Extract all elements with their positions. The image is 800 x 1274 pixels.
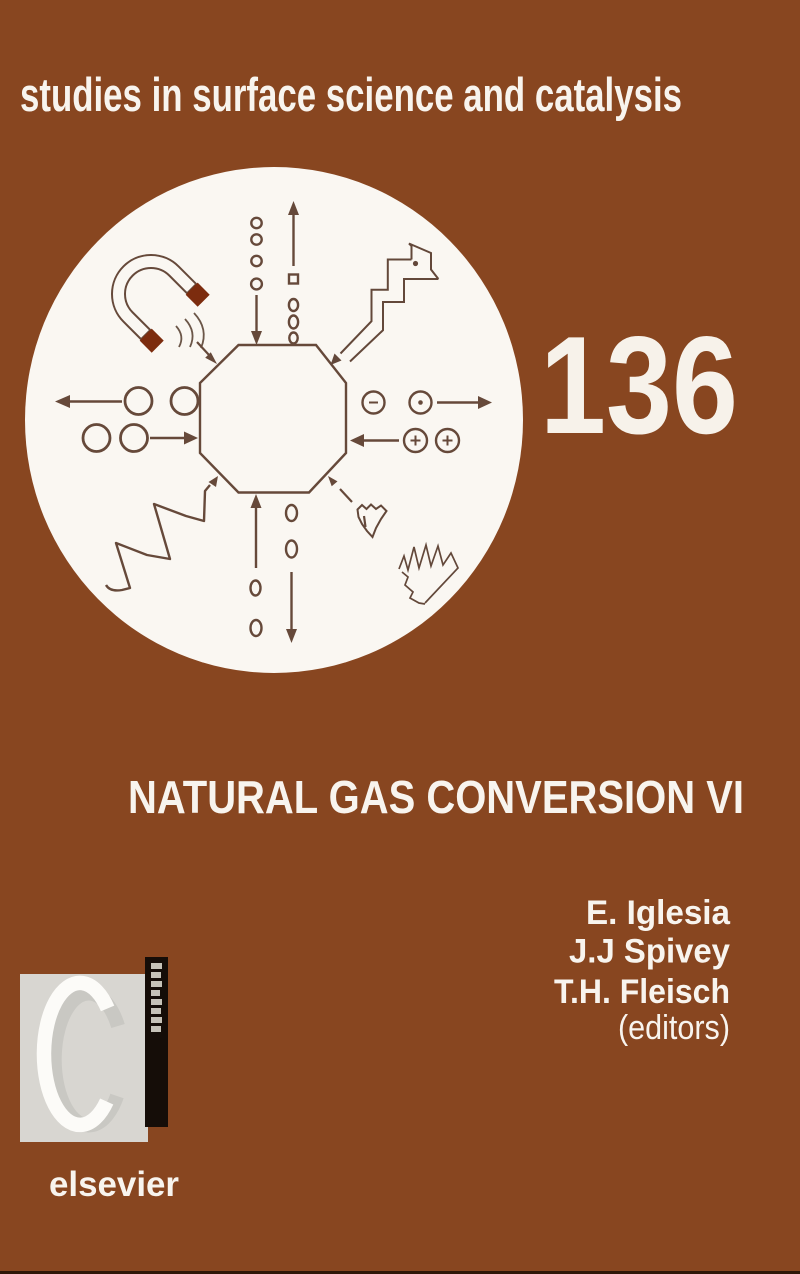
svg-text:studies in surface science and: studies in surface science and catalysis bbox=[20, 68, 682, 121]
svg-text:NATURAL GAS CONVERSION VI: NATURAL GAS CONVERSION VI bbox=[128, 771, 744, 823]
svg-text:elsevier: elsevier bbox=[49, 1165, 179, 1204]
svg-text:T.H. Fleisch: T.H. Fleisch bbox=[554, 973, 730, 1011]
svg-text:(editors): (editors) bbox=[618, 1009, 730, 1047]
svg-text:E. Iglesia: E. Iglesia bbox=[586, 894, 731, 932]
svg-text:J.J Spivey: J.J Spivey bbox=[569, 933, 730, 971]
svg-text:136: 136 bbox=[540, 308, 738, 463]
